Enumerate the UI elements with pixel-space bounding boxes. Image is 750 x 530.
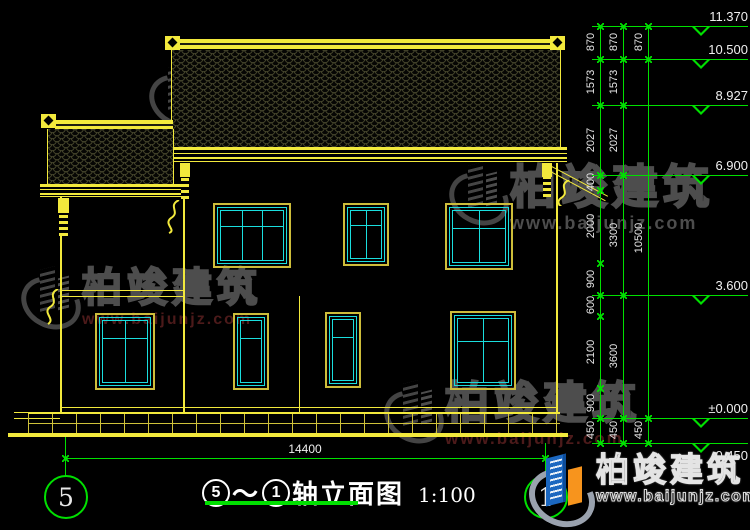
dim-connector-line: [592, 295, 654, 296]
level-triangle-icon: [692, 60, 710, 69]
cad-elevation-canvas: 柏竣建筑www.baijunjz.com柏竣建筑www.baijunjz.com…: [0, 0, 750, 530]
dim-connector-line: [592, 59, 654, 60]
bottom-dim-text: 14400: [255, 442, 355, 456]
logo-building-blue-icon: [546, 454, 566, 507]
dim-tick-icon: [597, 313, 604, 320]
dim-label: 870: [633, 33, 645, 51]
dim-chain-line: [600, 26, 601, 443]
dim-label: 450: [585, 421, 597, 439]
dim-chain-line: [648, 26, 649, 443]
dim-label: 2027: [585, 128, 597, 152]
dim-label: 900: [585, 394, 597, 412]
title-text: 轴立面图: [292, 474, 404, 511]
dim-chain-line: [623, 26, 624, 443]
brand-url: www.baijunjz.com: [596, 488, 750, 506]
dim-label: 450: [633, 421, 645, 439]
level-triangle-icon: [692, 176, 710, 185]
brand-name: 柏竣建筑: [596, 452, 750, 488]
dim-connector-line: [592, 175, 654, 176]
title-scale: 1:100: [418, 483, 476, 507]
dim-label: 870: [608, 33, 620, 51]
dim-label: 2027: [608, 128, 620, 152]
dim-connector-line: [592, 418, 654, 419]
level-triangle-icon: [692, 27, 710, 36]
dim-label: 450: [608, 421, 620, 439]
axis-bubble-5: 5: [44, 475, 88, 519]
dim-tick-icon: [597, 260, 604, 267]
bottom-dim-line: [65, 458, 545, 459]
dim-connector-line: [592, 26, 654, 27]
logo-building-orange-icon: [568, 466, 582, 505]
level-triangle-icon: [692, 419, 710, 428]
dim-label: 600: [585, 296, 597, 314]
level-triangle-icon: [692, 106, 710, 115]
dim-label: 3300: [608, 223, 620, 247]
title-underline: [205, 501, 358, 505]
dim-label: 1573: [608, 70, 620, 94]
level-label: ±0.000: [650, 401, 748, 416]
dim-label: 2000: [585, 214, 597, 238]
level-label: 10.500: [650, 42, 748, 57]
dim-connector-line: [592, 443, 654, 444]
level-label: 3.600: [650, 278, 748, 293]
axis-bubble-5-label: 5: [58, 483, 74, 512]
dim-label: 870: [585, 33, 597, 51]
brand-logo: 柏竣建筑 www.baijunjz.com: [528, 452, 750, 530]
level-label: 6.900: [650, 158, 748, 173]
dim-tick-icon: [62, 455, 69, 462]
dim-tick-icon: [597, 187, 604, 194]
drawing-title: 5 ～ 1 轴立面图 1:100: [202, 474, 476, 511]
dim-connector-line: [592, 105, 654, 106]
level-triangle-icon: [692, 296, 710, 305]
brand-logo-icon: [528, 452, 592, 526]
dim-tick-icon: [597, 385, 604, 392]
level-label: 8.927: [650, 88, 748, 103]
dim-label: 900: [585, 270, 597, 288]
dim-label: 2100: [585, 340, 597, 364]
dim-label: 10500: [633, 223, 645, 254]
level-label: 11.370: [650, 9, 748, 24]
title-tilde: ～: [232, 474, 260, 511]
dim-label: 3600: [608, 344, 620, 368]
dim-label: 1573: [585, 70, 597, 94]
